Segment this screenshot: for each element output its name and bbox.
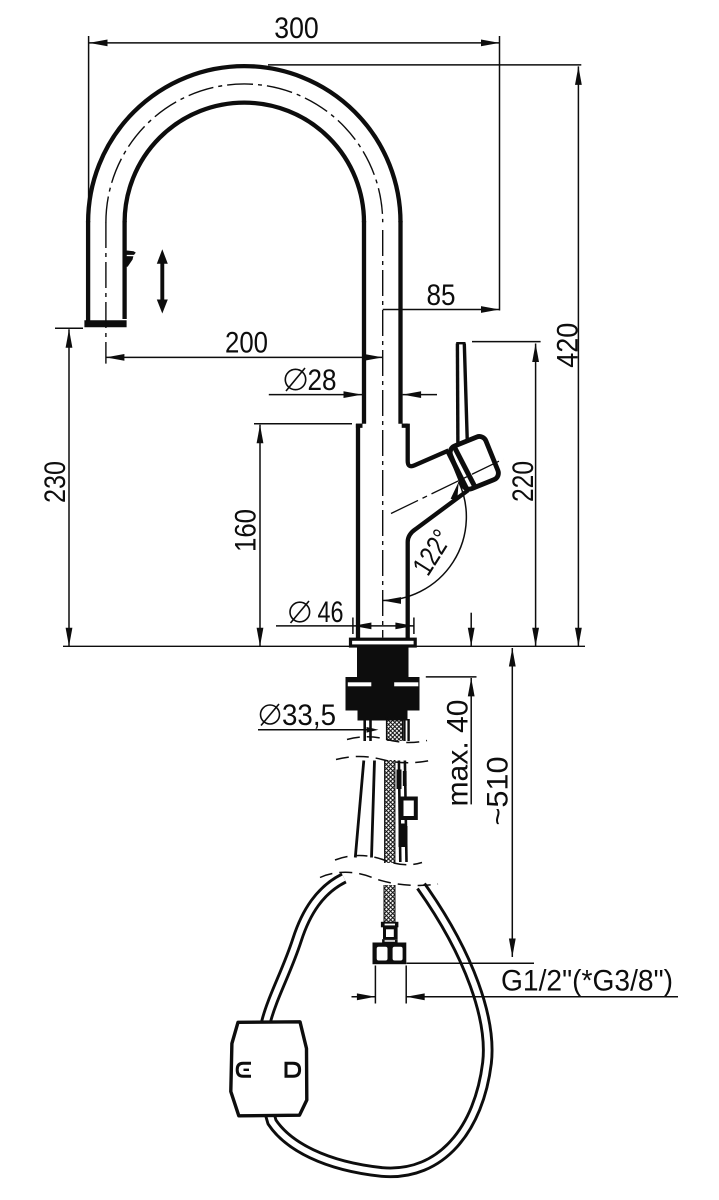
svg-text:85: 85 xyxy=(427,279,456,312)
svg-text:160: 160 xyxy=(230,509,263,552)
svg-text:G1/2"(*G3/8"): G1/2"(*G3/8") xyxy=(501,965,673,998)
svg-text:33,5: 33,5 xyxy=(282,699,336,732)
svg-text:28: 28 xyxy=(308,364,337,397)
svg-text:220: 220 xyxy=(507,461,540,502)
svg-text:300: 300 xyxy=(274,12,319,45)
svg-text:200: 200 xyxy=(225,327,268,360)
svg-text:max. 40: max. 40 xyxy=(442,700,475,807)
svg-text:46: 46 xyxy=(318,596,344,629)
svg-text:230: 230 xyxy=(39,461,72,503)
svg-text:420: 420 xyxy=(552,323,585,368)
svg-text:~510: ~510 xyxy=(482,757,515,826)
